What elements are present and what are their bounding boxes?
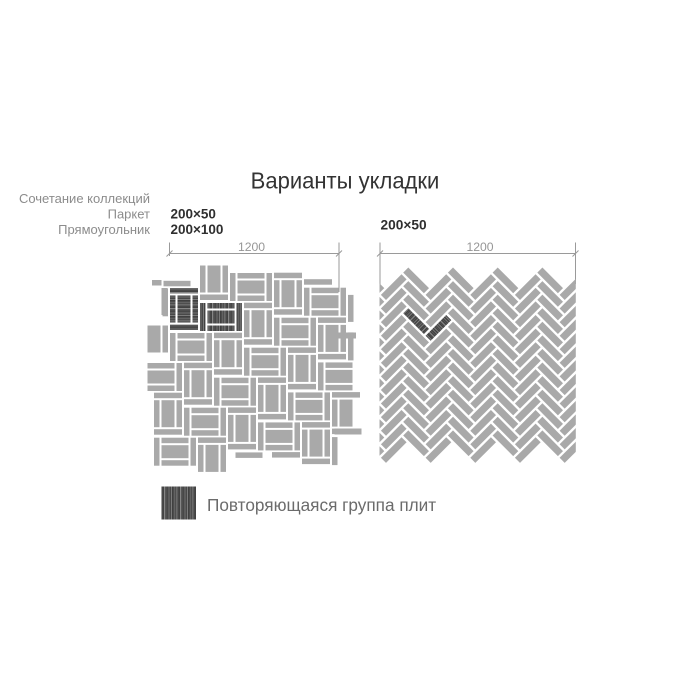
svg-text:1200: 1200: [238, 240, 265, 254]
svg-text:Варианты укладки: Варианты укладки: [251, 168, 440, 194]
svg-text:200×50: 200×50: [381, 218, 427, 233]
svg-text:Сочетание коллекций: Сочетание коллекций: [19, 191, 150, 206]
svg-text:200×100: 200×100: [171, 222, 224, 237]
svg-text:Повторяющаяся группа плит: Повторяющаяся группа плит: [207, 495, 436, 515]
svg-text:200×50: 200×50: [171, 207, 216, 222]
svg-text:Прямоугольник: Прямоугольник: [58, 222, 150, 237]
svg-text:1200: 1200: [466, 240, 493, 254]
svg-text:Паркет: Паркет: [108, 207, 150, 222]
